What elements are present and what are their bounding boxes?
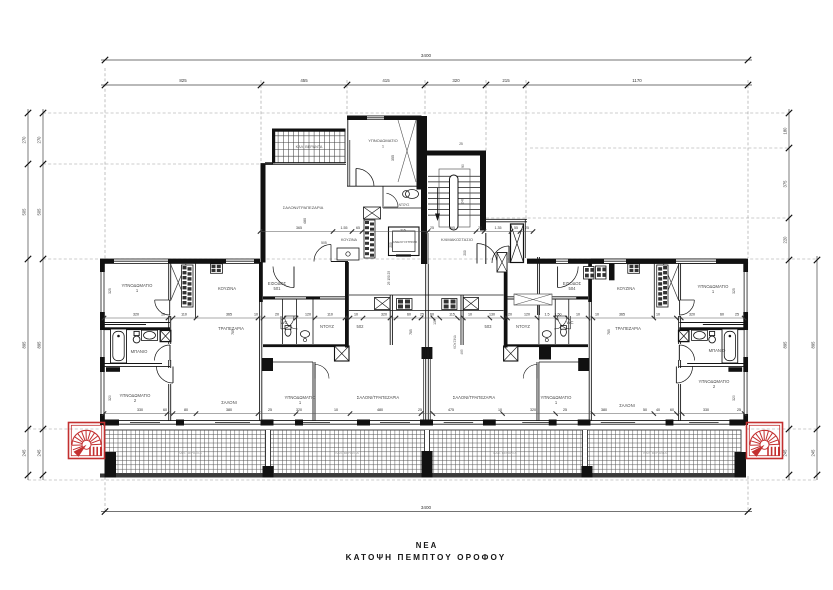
svg-text:40: 40 [656,408,660,412]
svg-text:1.55: 1.55 [341,226,348,230]
svg-text:503: 503 [485,324,493,329]
svg-text:ΣΑΛΟΝΙ: ΣΑΛΟΝΙ [619,403,635,408]
svg-text:110: 110 [181,312,187,316]
svg-text:10: 10 [354,312,358,316]
svg-text:485: 485 [460,349,464,355]
svg-text:365: 365 [619,312,625,316]
svg-text:ΚΑΛ. ΒΕΡΑΝΤΑ: ΚΑΛ. ΒΕΡΑΝΤΑ [335,451,359,455]
svg-text:785: 785 [409,329,413,335]
svg-text:ΝΕΑ: ΝΕΑ [416,541,438,550]
svg-text:3400: 3400 [421,53,432,58]
svg-text:10: 10 [498,408,502,412]
svg-text:330: 330 [137,408,143,412]
svg-text:380: 380 [601,408,607,412]
svg-text:65: 65 [356,226,360,230]
svg-text:ΤΡΑΠΕΖΑΡΙΑ: ΤΡΑΠΕΖΑΡΙΑ [615,326,641,331]
svg-text:60: 60 [430,312,434,316]
svg-text:480: 480 [303,218,307,224]
svg-text:502: 502 [357,324,365,329]
svg-text:240: 240 [461,198,465,204]
svg-text:25: 25 [268,408,272,412]
svg-text:415: 415 [382,78,390,83]
svg-text:120: 120 [305,312,311,316]
svg-text:60: 60 [720,312,724,316]
svg-text:895: 895 [37,341,42,349]
svg-text:475: 475 [448,408,454,412]
svg-text:ΤΡΑΠΕΖΑΡΙΑ: ΤΡΑΠΕΖΑΡΙΑ [218,326,244,331]
svg-text:505: 505 [37,208,42,216]
svg-text:320: 320 [689,312,695,316]
svg-text:10: 10 [468,312,472,316]
svg-text:1170: 1170 [632,78,642,83]
svg-text:380: 380 [226,408,232,412]
svg-text:365: 365 [226,312,232,316]
svg-text:10: 10 [656,312,660,316]
svg-text:180: 180 [783,127,788,135]
svg-text:110: 110 [327,312,333,316]
svg-text:3400: 3400 [421,505,432,510]
svg-text:505: 505 [321,241,327,245]
svg-text:10: 10 [576,312,580,316]
svg-text:60: 60 [163,408,167,412]
svg-text:120: 120 [524,312,530,316]
svg-text:20: 20 [275,312,279,316]
svg-text:80: 80 [184,408,188,412]
svg-text:90: 90 [461,164,465,168]
svg-text:10: 10 [161,312,165,316]
svg-text:ΚΛΙΜΑΚΟΣΤΑΣΙΟ: ΚΛΙΜΑΚΟΣΤΑΣΙΟ [441,237,473,242]
svg-text:320: 320 [530,408,536,412]
svg-text:25: 25 [735,312,739,316]
svg-text:320: 320 [381,312,387,316]
svg-text:60: 60 [407,312,411,316]
svg-text:320: 320 [133,312,139,316]
svg-text:270: 270 [22,136,27,144]
svg-text:1.5: 1.5 [545,312,550,316]
svg-text:ΚΑΛ. ΒΕΡΑΝΤΑ: ΚΑΛ. ΒΕΡΑΝΤΑ [296,145,323,149]
svg-text:ΚΟΥΖΙΝΑ: ΚΟΥΖΙΝΑ [341,238,357,242]
svg-text:ΚΟΥΖΙΝΑ: ΚΟΥΖΙΝΑ [218,286,236,291]
svg-text:501: 501 [274,286,282,291]
svg-text:ΚΟΥΖΙΝΑ: ΚΟΥΖΙΝΑ [453,334,457,349]
svg-text:25: 25 [525,226,529,230]
svg-text:ΚΑΛ. ΒΕΡΑΝΤΑ: ΚΑΛ. ΒΕΡΑΝΤΑ [178,451,202,455]
svg-text:20: 20 [508,312,512,316]
svg-text:365: 365 [296,226,302,230]
svg-text:ΣΑΛΟΝΙ/ΤΡΑΠΕΖΑΡΙΑ: ΣΑΛΟΝΙ/ΤΡΑΠΕΖΑΡΙΑ [283,205,324,210]
svg-text:25: 25 [459,142,463,146]
svg-text:ΚΑΛ. ΒΕΡΑΝΤΑ: ΚΑΛ. ΒΕΡΑΝΤΑ [643,451,667,455]
svg-text:ΥΠΝΟΔΩΜΑΤΙΟ: ΥΠΝΟΔΩΜΑΤΙΟ [368,138,398,143]
svg-text:785: 785 [607,329,611,335]
svg-text:ΑΝΕΛΚΥΣΤΗΡΑΣ: ΑΝΕΛΚΥΣΤΗΡΑΣ [393,240,417,244]
svg-text:504: 504 [569,286,577,291]
svg-text:480: 480 [377,408,383,412]
svg-text:505: 505 [22,208,27,216]
svg-text:245: 245 [37,449,42,457]
svg-text:320: 320 [108,395,112,401]
svg-text:1.35: 1.35 [495,226,502,230]
svg-text:325: 325 [732,288,736,294]
svg-text:295: 295 [449,226,455,230]
svg-text:ΚΑΛ. ΒΕΡΑΝΤΑ: ΚΑΛ. ΒΕΡΑΝΤΑ [493,451,517,455]
svg-text:895: 895 [22,341,27,349]
svg-text:320: 320 [452,78,460,83]
svg-text:ΝΤΟΥΖ: ΝΤΟΥΖ [516,324,530,329]
svg-text:25: 25 [737,408,741,412]
svg-text:ΚΟΥΖΙΝΑ: ΚΟΥΖΙΝΑ [617,286,635,291]
svg-text:220: 220 [783,236,788,244]
svg-text:55: 55 [514,226,518,230]
svg-text:25: 25 [563,408,567,412]
svg-text:ΣΑΛΟΝΙ/ΤΡΑΠΕΖΑΡΙΑ: ΣΑΛΟΝΙ/ΤΡΑΠΕΖΑΡΙΑ [453,395,496,400]
svg-text:330: 330 [703,408,709,412]
svg-text:270: 270 [37,136,42,144]
svg-text:895: 895 [811,341,816,349]
svg-text:10: 10 [334,408,338,412]
svg-text:ΚΑΤΟΨΗ ΠΕΜΠΤΟΥ ΟΡΟΦΟΥ: ΚΑΤΟΨΗ ΠΕΜΠΤΟΥ ΟΡΟΦΟΥ [346,553,507,562]
svg-text:10: 10 [254,312,258,316]
svg-text:375: 375 [783,180,788,188]
svg-text:50: 50 [643,408,647,412]
svg-text:WC: WC [567,320,574,325]
svg-text:130: 130 [489,312,495,316]
svg-text:25: 25 [418,408,422,412]
svg-text:25: 25 [430,226,434,230]
svg-text:ΣΑΛΟΝΙ: ΣΑΛΟΝΙ [221,400,237,405]
svg-text:10: 10 [595,312,599,316]
svg-text:245: 245 [811,449,816,457]
svg-text:25: 25 [420,312,424,316]
svg-text:325: 325 [108,288,112,294]
svg-text:200: 200 [463,250,467,256]
svg-text:ΝΤΟΥΖ: ΝΤΟΥΖ [320,324,334,329]
svg-text:355: 355 [391,155,395,161]
svg-text:WC: WC [281,320,288,325]
svg-text:115: 115 [449,312,455,316]
svg-text:215: 215 [502,78,510,83]
svg-text:ΜΠΑΝΙΟ: ΜΠΑΝΙΟ [709,348,726,353]
svg-text:320: 320 [296,408,302,412]
svg-text:25: 25 [478,226,482,230]
svg-text:320: 320 [732,395,736,401]
svg-text:135: 135 [433,319,437,325]
svg-text:215: 215 [400,229,406,233]
svg-text:ΝΤΟΥΣ: ΝΤΟΥΣ [399,203,410,207]
svg-text:ΜΠΑΝΙΟ: ΜΠΑΝΙΟ [131,349,148,354]
svg-text:455: 455 [300,78,308,83]
svg-text:ΣΑΛΟΝΙ/ΤΡΑΠΕΖΑΡΙΑ: ΣΑΛΟΝΙ/ΤΡΑΠΕΖΑΡΙΑ [357,395,400,400]
svg-text:245: 245 [22,449,27,457]
svg-text:825: 825 [179,78,187,83]
svg-text:60: 60 [670,408,674,412]
svg-text:895: 895 [783,341,788,349]
svg-text:25 150 25: 25 150 25 [387,271,391,285]
svg-text:1.50: 1.50 [555,312,562,316]
